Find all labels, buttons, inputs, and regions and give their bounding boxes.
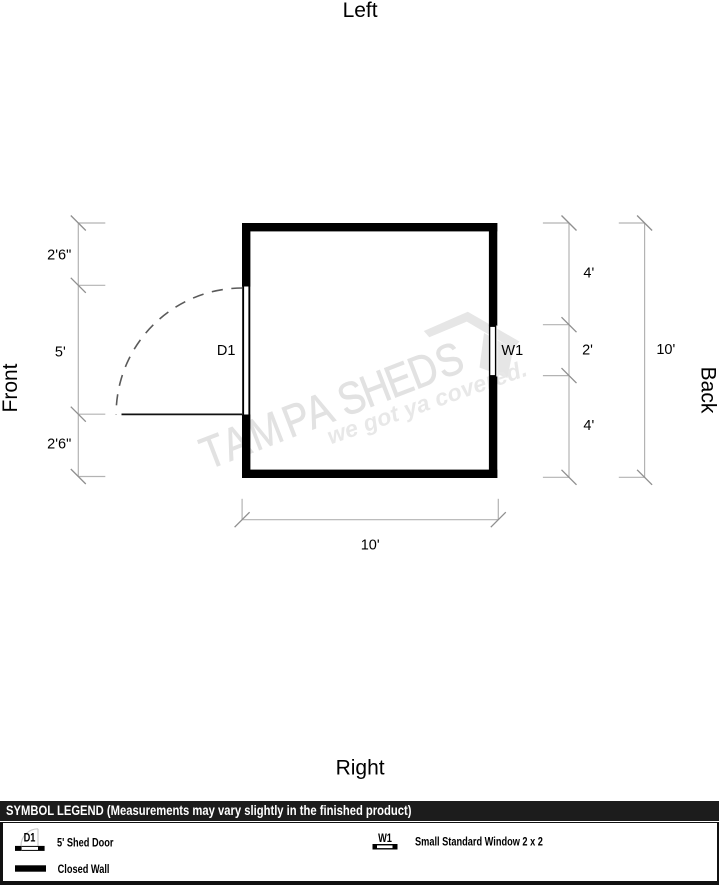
svg-text:W1: W1 <box>501 343 523 359</box>
svg-text:D1: D1 <box>217 343 236 359</box>
svg-text:10': 10' <box>361 537 380 553</box>
svg-text:2'6": 2'6" <box>47 436 71 452</box>
svg-text:W1: W1 <box>378 832 392 846</box>
svg-text:Left: Left <box>343 0 378 22</box>
svg-text:5': 5' <box>55 345 66 361</box>
svg-text:Small Standard Window 2 x 2: Small Standard Window 2 x 2 <box>415 835 543 849</box>
svg-text:Right: Right <box>336 756 385 779</box>
svg-text:4': 4' <box>583 418 594 434</box>
svg-text:Closed Wall: Closed Wall <box>58 863 110 877</box>
svg-text:D1: D1 <box>24 832 36 846</box>
svg-text:4': 4' <box>583 266 594 282</box>
svg-text:10': 10' <box>656 342 675 358</box>
svg-text:Front: Front <box>0 363 22 412</box>
svg-text:Back: Back <box>696 367 719 414</box>
svg-text:2'6": 2'6" <box>47 248 71 264</box>
svg-text:5' Shed Door: 5' Shed Door <box>57 836 114 850</box>
svg-text:2': 2' <box>582 342 593 358</box>
